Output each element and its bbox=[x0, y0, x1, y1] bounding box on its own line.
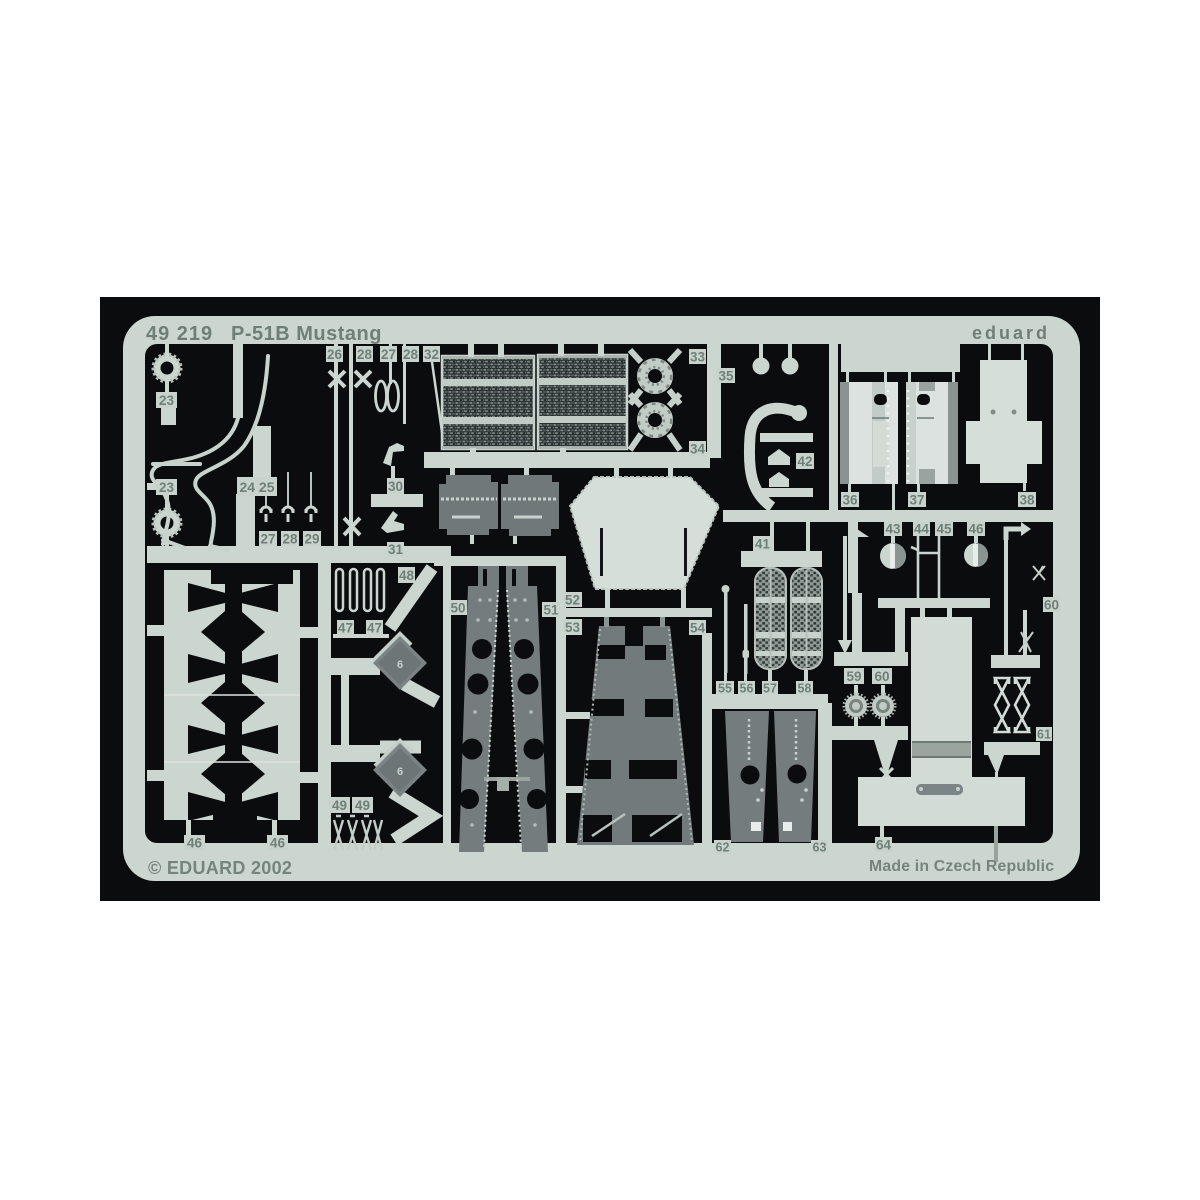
svg-text:51: 51 bbox=[543, 603, 559, 618]
svg-text:56: 56 bbox=[740, 682, 754, 696]
svg-text:30: 30 bbox=[388, 479, 403, 494]
svg-text:33: 33 bbox=[690, 350, 706, 365]
svg-text:Made in Czech Republic: Made in Czech Republic bbox=[869, 858, 1054, 875]
svg-text:46: 46 bbox=[187, 836, 203, 851]
svg-text:53: 53 bbox=[565, 620, 581, 635]
svg-text:55: 55 bbox=[718, 682, 732, 696]
svg-text:49: 49 bbox=[355, 798, 370, 813]
svg-text:59: 59 bbox=[846, 669, 861, 684]
svg-text:63: 63 bbox=[813, 841, 827, 855]
svg-text:49: 49 bbox=[332, 798, 347, 813]
svg-text:34: 34 bbox=[690, 442, 706, 457]
svg-text:6: 6 bbox=[397, 659, 403, 671]
svg-text:57: 57 bbox=[763, 682, 777, 696]
svg-text:28: 28 bbox=[403, 347, 419, 362]
svg-text:45: 45 bbox=[936, 522, 952, 537]
svg-text:54: 54 bbox=[690, 621, 706, 636]
svg-text:46: 46 bbox=[968, 522, 984, 537]
svg-text:31: 31 bbox=[388, 542, 404, 557]
svg-text:47: 47 bbox=[338, 621, 353, 636]
svg-text:26: 26 bbox=[327, 347, 343, 362]
svg-text:62: 62 bbox=[716, 841, 730, 855]
svg-text:52: 52 bbox=[565, 593, 580, 608]
svg-text:24 25: 24 25 bbox=[239, 479, 274, 495]
svg-text:27: 27 bbox=[381, 347, 396, 362]
svg-text:48: 48 bbox=[399, 568, 415, 583]
svg-text:P-51B Mustang: P-51B Mustang bbox=[231, 323, 382, 345]
svg-text:61: 61 bbox=[1037, 728, 1051, 742]
svg-text:41: 41 bbox=[755, 537, 771, 552]
svg-text:6: 6 bbox=[397, 766, 403, 778]
svg-text:50: 50 bbox=[450, 601, 465, 616]
svg-text:23: 23 bbox=[159, 393, 175, 408]
svg-text:60: 60 bbox=[1044, 598, 1059, 613]
svg-text:38: 38 bbox=[1019, 493, 1035, 508]
svg-text:36: 36 bbox=[842, 493, 858, 508]
svg-text:64: 64 bbox=[876, 838, 892, 853]
svg-text:42: 42 bbox=[797, 454, 812, 469]
svg-text:35: 35 bbox=[718, 369, 734, 384]
svg-text:23: 23 bbox=[159, 480, 175, 495]
svg-text:46: 46 bbox=[270, 836, 286, 851]
svg-text:47: 47 bbox=[367, 621, 382, 636]
svg-text:28: 28 bbox=[282, 532, 298, 547]
svg-text:58: 58 bbox=[798, 682, 812, 696]
svg-text:49 219: 49 219 bbox=[146, 323, 213, 345]
svg-text:eduard: eduard bbox=[972, 323, 1050, 343]
svg-text:27: 27 bbox=[260, 532, 275, 547]
svg-text:© EDUARD 2002: © EDUARD 2002 bbox=[148, 858, 292, 878]
svg-text:37: 37 bbox=[909, 493, 924, 508]
svg-text:44: 44 bbox=[914, 522, 930, 537]
svg-text:43: 43 bbox=[885, 522, 901, 537]
svg-text:28: 28 bbox=[357, 347, 373, 362]
svg-text:32: 32 bbox=[424, 347, 439, 362]
svg-text:60: 60 bbox=[874, 669, 889, 684]
svg-text:29: 29 bbox=[304, 532, 319, 547]
